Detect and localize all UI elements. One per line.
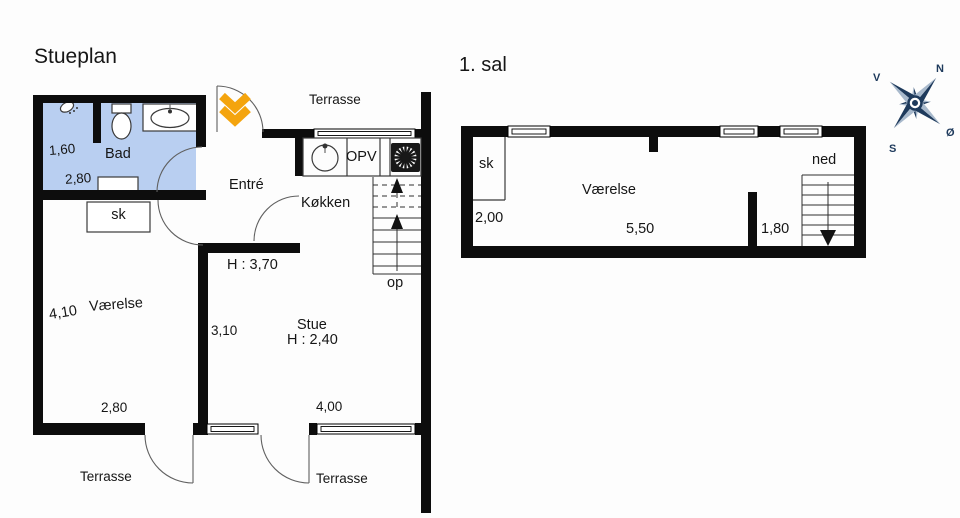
dim-stue-width: 4,00 [316,400,342,414]
ff-room-label-sk: sk [479,157,494,172]
toilet-icon [112,104,131,139]
first-floor-plan [461,126,866,258]
compass-west-label: V [873,72,881,84]
ff-label-stairs-down: ned [812,153,836,168]
label-terrasse-bottom-mid: Terrasse [316,472,368,486]
dim-bad-width: 1,60 [48,142,75,158]
label-terrasse-top: Terrasse [309,93,361,107]
room-label-vaerelse: Værelse [89,296,144,314]
compass-rose-icon: N V S Ø [869,57,960,155]
kitchen-window [314,129,415,138]
vaerelse-door [158,200,203,245]
room-label-stue: Stue [297,318,327,333]
room-label-bad: Bad [105,147,131,162]
kitchen-sink-icon [312,144,338,172]
kitchen-door [254,196,299,241]
room-label-kokken: Køkken [301,196,350,211]
dim-stue-depth: 3,10 [211,324,237,338]
dim-bad-length: 2,80 [65,171,92,186]
first-floor-walls [461,126,866,258]
staircase-down [802,175,854,246]
height-entre: H : 3,70 [227,258,278,273]
label-terrasse-bottom-left: Terrasse [80,470,132,484]
compass-south-label: S [889,143,896,155]
stairs-down-arrow-icon [820,182,836,246]
floorplan-drawing: N V S Ø [0,0,960,518]
stairs-up-arrow-icon [391,178,403,271]
room-label-entre: Entré [229,178,264,193]
ground-floor-title: Stueplan [34,46,117,67]
vaerelse-window [207,424,258,434]
room-label-sk: sk [87,208,150,223]
stove-icon [391,143,420,172]
dim-vaerelse-width: 2,80 [101,401,127,415]
compass-east-label: Ø [946,127,955,139]
compass-north-label: N [936,63,944,75]
label-dishwasher: OPV [346,150,377,165]
ff-room-label-vaerelse: Værelse [582,183,636,198]
ff-dim-left: 2,00 [475,211,503,226]
ff-dim-right: 1,80 [761,222,789,237]
washbasin-icon [143,104,198,131]
height-stue: H : 2,40 [287,333,338,348]
terrace-door-mid [261,435,309,483]
entrance-chevron-icon [222,96,248,121]
stue-window [317,424,415,434]
first-floor-title: 1. sal [459,55,507,75]
terrace-door-left [145,435,193,483]
floorplan-image: N V S Ø Stueplan 1. sal 1,60 Bad 2,80 sk… [0,0,960,518]
bath-cabinet [98,177,138,191]
staircase-up [373,177,421,274]
ff-dim-room: 5,50 [626,222,654,237]
label-stairs-up: op [387,276,403,291]
